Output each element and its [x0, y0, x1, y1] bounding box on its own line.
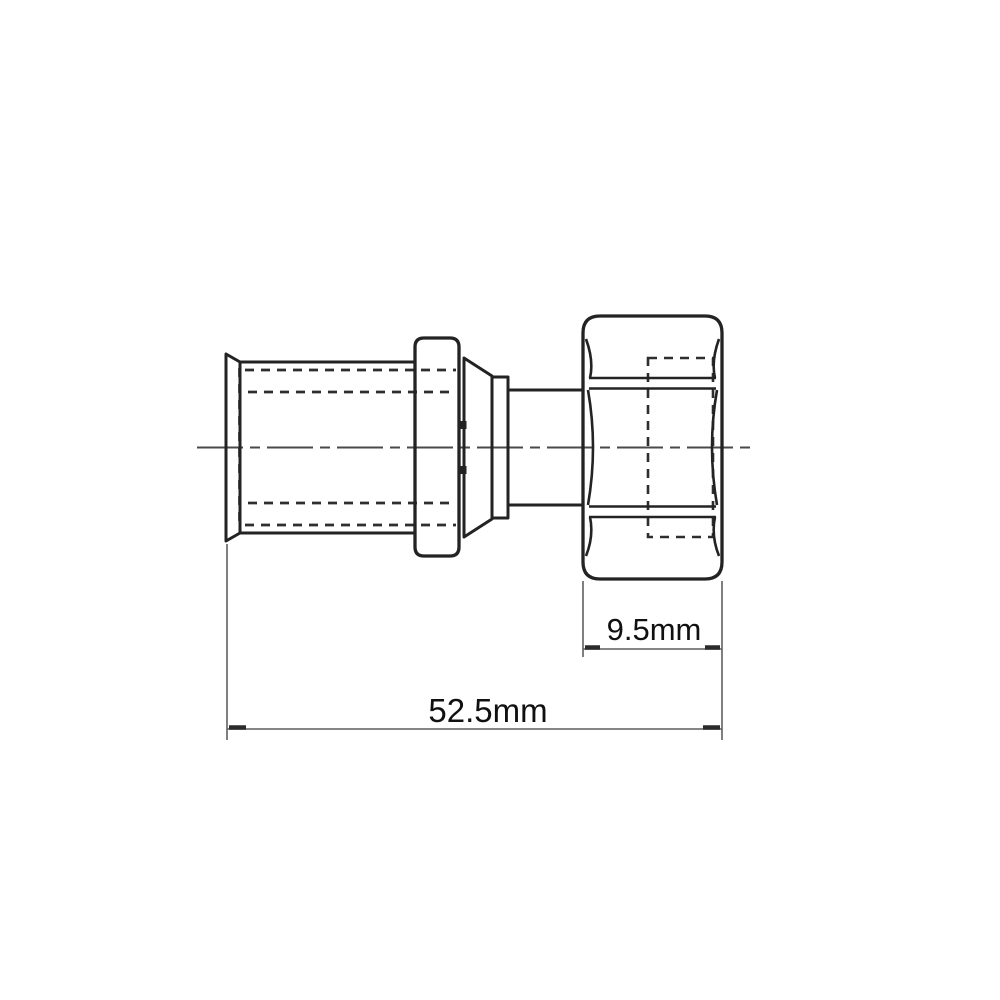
dimension-label-overall-length: 52.5mm — [428, 692, 547, 729]
pipe-fitting-technical-drawing: 9.5mm 52.5mm — [0, 0, 1000, 1000]
technical-drawing-page: 9.5mm 52.5mm — [0, 0, 1000, 1000]
dimension-label-nut-width: 9.5mm — [607, 612, 702, 647]
